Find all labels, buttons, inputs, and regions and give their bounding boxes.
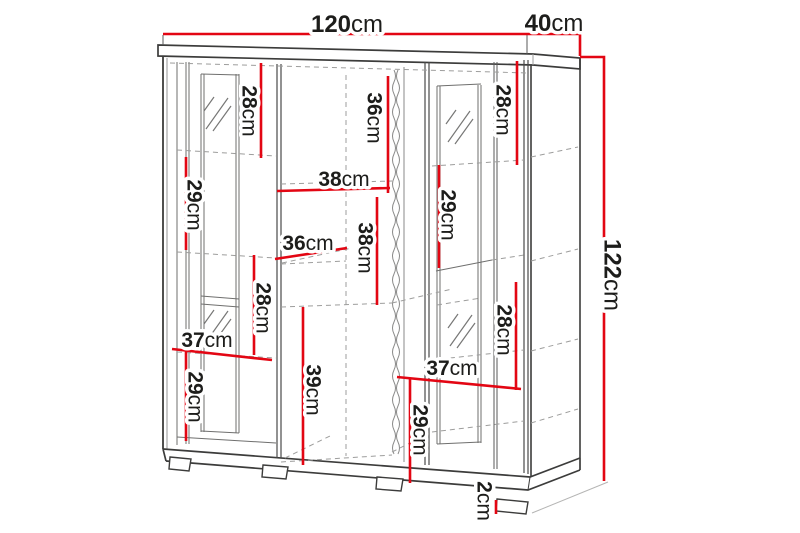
dim-unit: cm [493, 328, 516, 356]
dim-value: 28 [493, 304, 516, 328]
dim-unit: cm [473, 493, 496, 521]
glass-hatch-icon [448, 314, 475, 348]
dim-label-right-upper-niche: 29cm 29cm [437, 189, 460, 240]
label-text: 29cm [184, 371, 207, 422]
dim-unit: cm [450, 357, 478, 380]
dim-unit: cm [302, 388, 325, 416]
label-text: 39cm [302, 364, 325, 415]
dim-value: 38 [354, 222, 377, 246]
sliding-rail-zigzag [393, 70, 400, 454]
dim-label-middle-top-niche: 36cm 36cm [363, 92, 386, 143]
dim-value: 28 [492, 84, 515, 108]
dim-unit: cm [238, 109, 261, 137]
dim-label-left-upper-niche: 29cm 29cm [183, 179, 206, 230]
dim-label-middle-shelf-width: 38cm 38cm [318, 168, 369, 191]
dim-label-top-width: 120cm 120cm [311, 11, 383, 38]
dim-value: 37 [426, 357, 449, 380]
base-panel [163, 449, 580, 490]
dim-unit: cm [599, 279, 626, 311]
dim-label-top-depth: 40cm 40cm [525, 10, 584, 37]
label-text: 2cm [473, 481, 496, 521]
diagram-canvas: 120cm 120cm 40cm 40cm 122cm 122cm 28cm 2… [0, 0, 800, 533]
label-text: 28cm [252, 282, 275, 333]
dim-label-overall-height: 122cm 122cm [599, 239, 626, 311]
label-text: 28cm [238, 85, 261, 136]
dim-value: 37 [181, 329, 204, 352]
dim-label-left-lower-niche: 28cm 28cm [252, 282, 275, 333]
glass-hatch-icon [446, 110, 473, 144]
label-text: 29cm [437, 189, 460, 240]
foot [496, 499, 528, 514]
dim-label-left-bottom-niche: 29cm 29cm [184, 371, 207, 422]
dimension-labels: 120cm 120cm 40cm 40cm 122cm 122cm 28cm 2… [181, 10, 625, 521]
dim-unit: cm [492, 108, 515, 136]
dim-value: 29 [184, 371, 207, 394]
label-text: 37cm [181, 329, 232, 352]
label-text: 122cm [599, 239, 626, 311]
foot [169, 457, 191, 471]
dim-value: 29 [183, 179, 206, 202]
dim-value: 36 [363, 92, 386, 115]
dim-unit: cm [306, 232, 334, 255]
dim-label-middle-shelf-depth: 36cm 36cm [282, 232, 333, 255]
dim-label-left-top-niche: 28cm 28cm [238, 85, 261, 136]
dim-label-foot-height: 2cm 2cm [473, 481, 496, 521]
dim-value: 28 [238, 85, 261, 109]
dim-value: 122 [599, 239, 626, 279]
ceiling-line [170, 63, 528, 73]
dim-unit: cm [551, 10, 583, 37]
dim-value: 39 [302, 364, 325, 387]
dim-unit: cm [342, 168, 370, 191]
dim-unit: cm [351, 11, 383, 38]
label-text: 29cm [409, 404, 432, 455]
label-text: 36cm [282, 232, 333, 255]
dim-value: 29 [437, 189, 460, 212]
dim-label-middle-lower-niche: 38cm 38cm [354, 222, 377, 273]
dim-value: 36 [282, 232, 305, 255]
label-text: 38cm [354, 222, 377, 273]
label-text: 40cm [525, 10, 584, 37]
dim-label-right-door-width: 37cm 37cm [426, 357, 477, 380]
foot [376, 477, 403, 491]
dim-unit: cm [354, 246, 377, 274]
dim-unit: cm [409, 428, 432, 456]
left-partition [277, 64, 281, 458]
dim-unit: cm [363, 116, 386, 144]
dim-value: 40 [525, 10, 552, 37]
label-text: 28cm [492, 84, 515, 135]
dim-label-right-bottom-niche: 29cm 29cm [409, 404, 432, 455]
dim-label-right-lower-niche: 28cm 28cm [493, 304, 516, 355]
dim-value: 120 [311, 11, 351, 38]
label-text: 36cm [363, 92, 386, 143]
dim-value: 29 [409, 404, 432, 427]
dim-unit: cm [183, 203, 206, 231]
label-text: 37cm [426, 357, 477, 380]
label-text: 120cm [311, 11, 383, 38]
label-text: 29cm [183, 179, 206, 230]
floor-line [532, 482, 608, 513]
dim-unit: cm [205, 329, 233, 352]
dim-label-right-top-niche: 28cm 28cm [492, 84, 515, 135]
label-text: 38cm [318, 168, 369, 191]
dim-label-left-door-width: 37cm 37cm [181, 329, 232, 352]
furniture-dimension-diagram: 120cm 120cm 40cm 40cm 122cm 122cm 28cm 2… [0, 0, 800, 533]
dim-unit: cm [252, 306, 275, 334]
label-text: 28cm [493, 304, 516, 355]
right-stile [524, 60, 528, 474]
dim-value: 2 [473, 481, 496, 493]
glass-hatch-icon [204, 97, 231, 131]
dim-value: 38 [318, 168, 342, 191]
dim-unit: cm [437, 213, 460, 241]
dim-label-middle-bottom-niche: 39cm 39cm [302, 364, 325, 415]
dim-value: 28 [252, 282, 275, 306]
foot [262, 465, 288, 479]
dim-unit: cm [184, 395, 207, 423]
right-shelf-edge [436, 260, 492, 271]
